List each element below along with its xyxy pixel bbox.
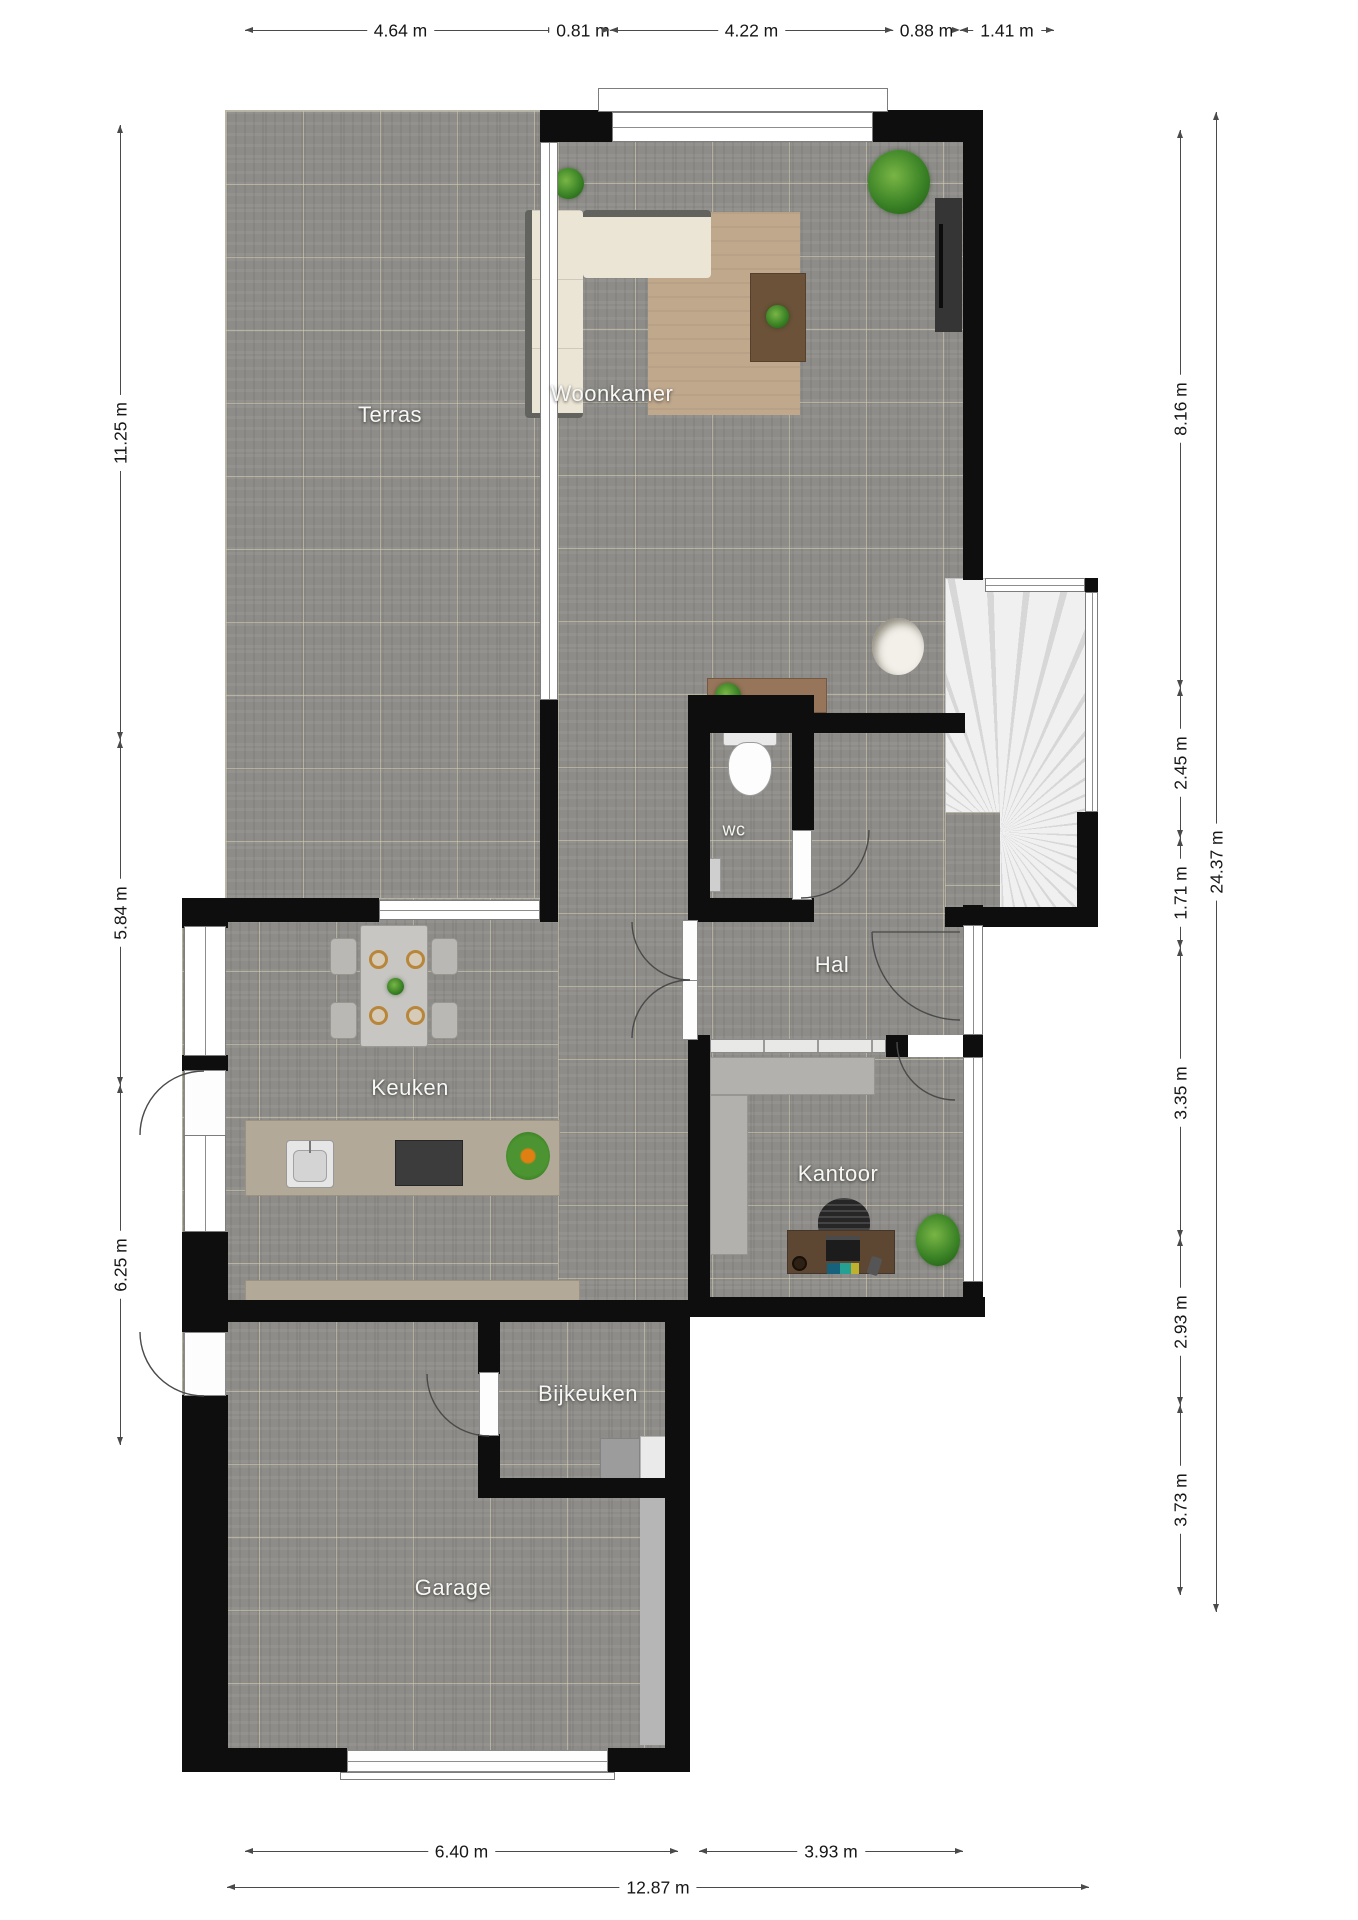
sliding-glass-door: [540, 142, 558, 700]
room-label-keuken: Keuken: [371, 1075, 449, 1101]
island-plant: [506, 1132, 550, 1180]
wall: [478, 1322, 500, 1374]
entry-door: [184, 1070, 226, 1136]
window: [184, 926, 226, 1056]
dining-chair: [330, 938, 357, 975]
plate: [369, 950, 388, 969]
dimension-right-2: 2.45 m: [1180, 688, 1181, 838]
terras-floor: [225, 110, 559, 919]
sofa-section-chaise: [583, 210, 711, 278]
mug: [792, 1256, 807, 1271]
plate: [406, 1006, 425, 1025]
wall: [886, 1035, 910, 1057]
wall: [688, 1035, 710, 1317]
glass-partition: [710, 1039, 886, 1053]
sink-tap: [309, 1141, 311, 1153]
dining-chair: [330, 1002, 357, 1039]
wall: [665, 1318, 690, 1770]
cooktop: [395, 1140, 463, 1186]
wall: [688, 1297, 985, 1317]
tv-screen: [939, 224, 943, 308]
window: [963, 1057, 983, 1282]
toilet-bowl: [728, 742, 772, 796]
room-label-woonkamer: Woonkamer: [551, 381, 674, 407]
dimension-left-2: 5.84 m: [120, 740, 121, 1085]
dimension-top-3: 4.22 m: [610, 30, 893, 31]
wall: [963, 110, 983, 580]
garage-door: [347, 1750, 608, 1772]
wall: [540, 110, 614, 142]
room-label-kantoor: Kantoor: [798, 1161, 879, 1187]
dimension-left-3: 6.25 m: [120, 1085, 121, 1445]
dimension-bottom-1: 6.40 m: [245, 1851, 678, 1852]
dimension-right-4: 3.35 m: [1180, 948, 1181, 1238]
wall: [478, 1434, 500, 1480]
garage-door-sill: [340, 1772, 615, 1780]
room-label-hal: Hal: [815, 952, 850, 978]
garage-side-strip: [640, 1497, 665, 1745]
coffee-table-plant: [766, 305, 789, 328]
wall: [182, 1748, 347, 1772]
window-sill: [598, 88, 888, 112]
dimension-top-5: 1.41 m: [960, 30, 1054, 31]
window: [985, 578, 1085, 592]
room-label-terras: Terras: [358, 402, 422, 428]
dimension-top-4: 0.88 m: [893, 30, 960, 31]
kantoor-plant: [916, 1214, 960, 1266]
dimension-bottom-total: 12.87 m: [227, 1887, 1089, 1888]
wall: [963, 1282, 983, 1302]
plate: [406, 950, 425, 969]
dimension-right-3: 1.71 m: [1180, 838, 1181, 948]
dimension-right-5: 2.93 m: [1180, 1238, 1181, 1405]
wc-door: [792, 830, 812, 900]
stair-landing: [945, 812, 1000, 907]
table-plant: [387, 978, 404, 995]
floor-plan: Terras Woonkamer wc Hal Keuken Kantoor B…: [0, 0, 1358, 1920]
dining-chair: [431, 938, 458, 975]
dimension-right-1: 8.16 m: [1180, 130, 1181, 688]
window: [963, 925, 983, 1035]
plate: [369, 1006, 388, 1025]
wall: [182, 1395, 228, 1770]
washer-unit: [600, 1438, 640, 1482]
dimension-bottom-2: 3.93 m: [699, 1851, 963, 1852]
room-label-bijkeuken: Bijkeuken: [538, 1381, 638, 1407]
wall: [182, 1055, 228, 1071]
wall: [963, 905, 983, 927]
window: [379, 900, 540, 920]
wall: [540, 700, 558, 922]
dimension-right-total: 24.37 m: [1216, 112, 1217, 1612]
sink-basin: [293, 1150, 327, 1182]
dimension-top-1: 4.64 m: [245, 30, 556, 31]
wall: [960, 1035, 983, 1057]
room-label-garage: Garage: [415, 1575, 491, 1601]
window: [612, 112, 873, 142]
window: [184, 1135, 226, 1232]
dining-chair: [431, 1002, 458, 1039]
bijkeuken-door: [479, 1372, 499, 1436]
notebook: [827, 1263, 859, 1274]
double-door: [682, 920, 698, 1040]
dimension-right-6: 3.73 m: [1180, 1405, 1181, 1595]
wall: [182, 1300, 690, 1322]
egg-chair: [872, 618, 924, 675]
dimension-top-2: 0.81 m: [556, 30, 610, 31]
office-cabinet-top: [710, 1057, 875, 1095]
laptop: [826, 1236, 860, 1261]
room-label-wc: wc: [723, 820, 746, 841]
window: [1085, 592, 1098, 812]
wall: [688, 713, 965, 733]
door-opening: [908, 1035, 963, 1057]
wall: [478, 1478, 690, 1498]
wall: [688, 898, 814, 922]
wall: [182, 898, 228, 928]
garage-side-door: [184, 1332, 226, 1396]
dimension-left-1: 11.25 m: [120, 125, 121, 740]
woonkamer-plant-right: [868, 150, 930, 214]
office-cabinet-left: [710, 1095, 748, 1255]
